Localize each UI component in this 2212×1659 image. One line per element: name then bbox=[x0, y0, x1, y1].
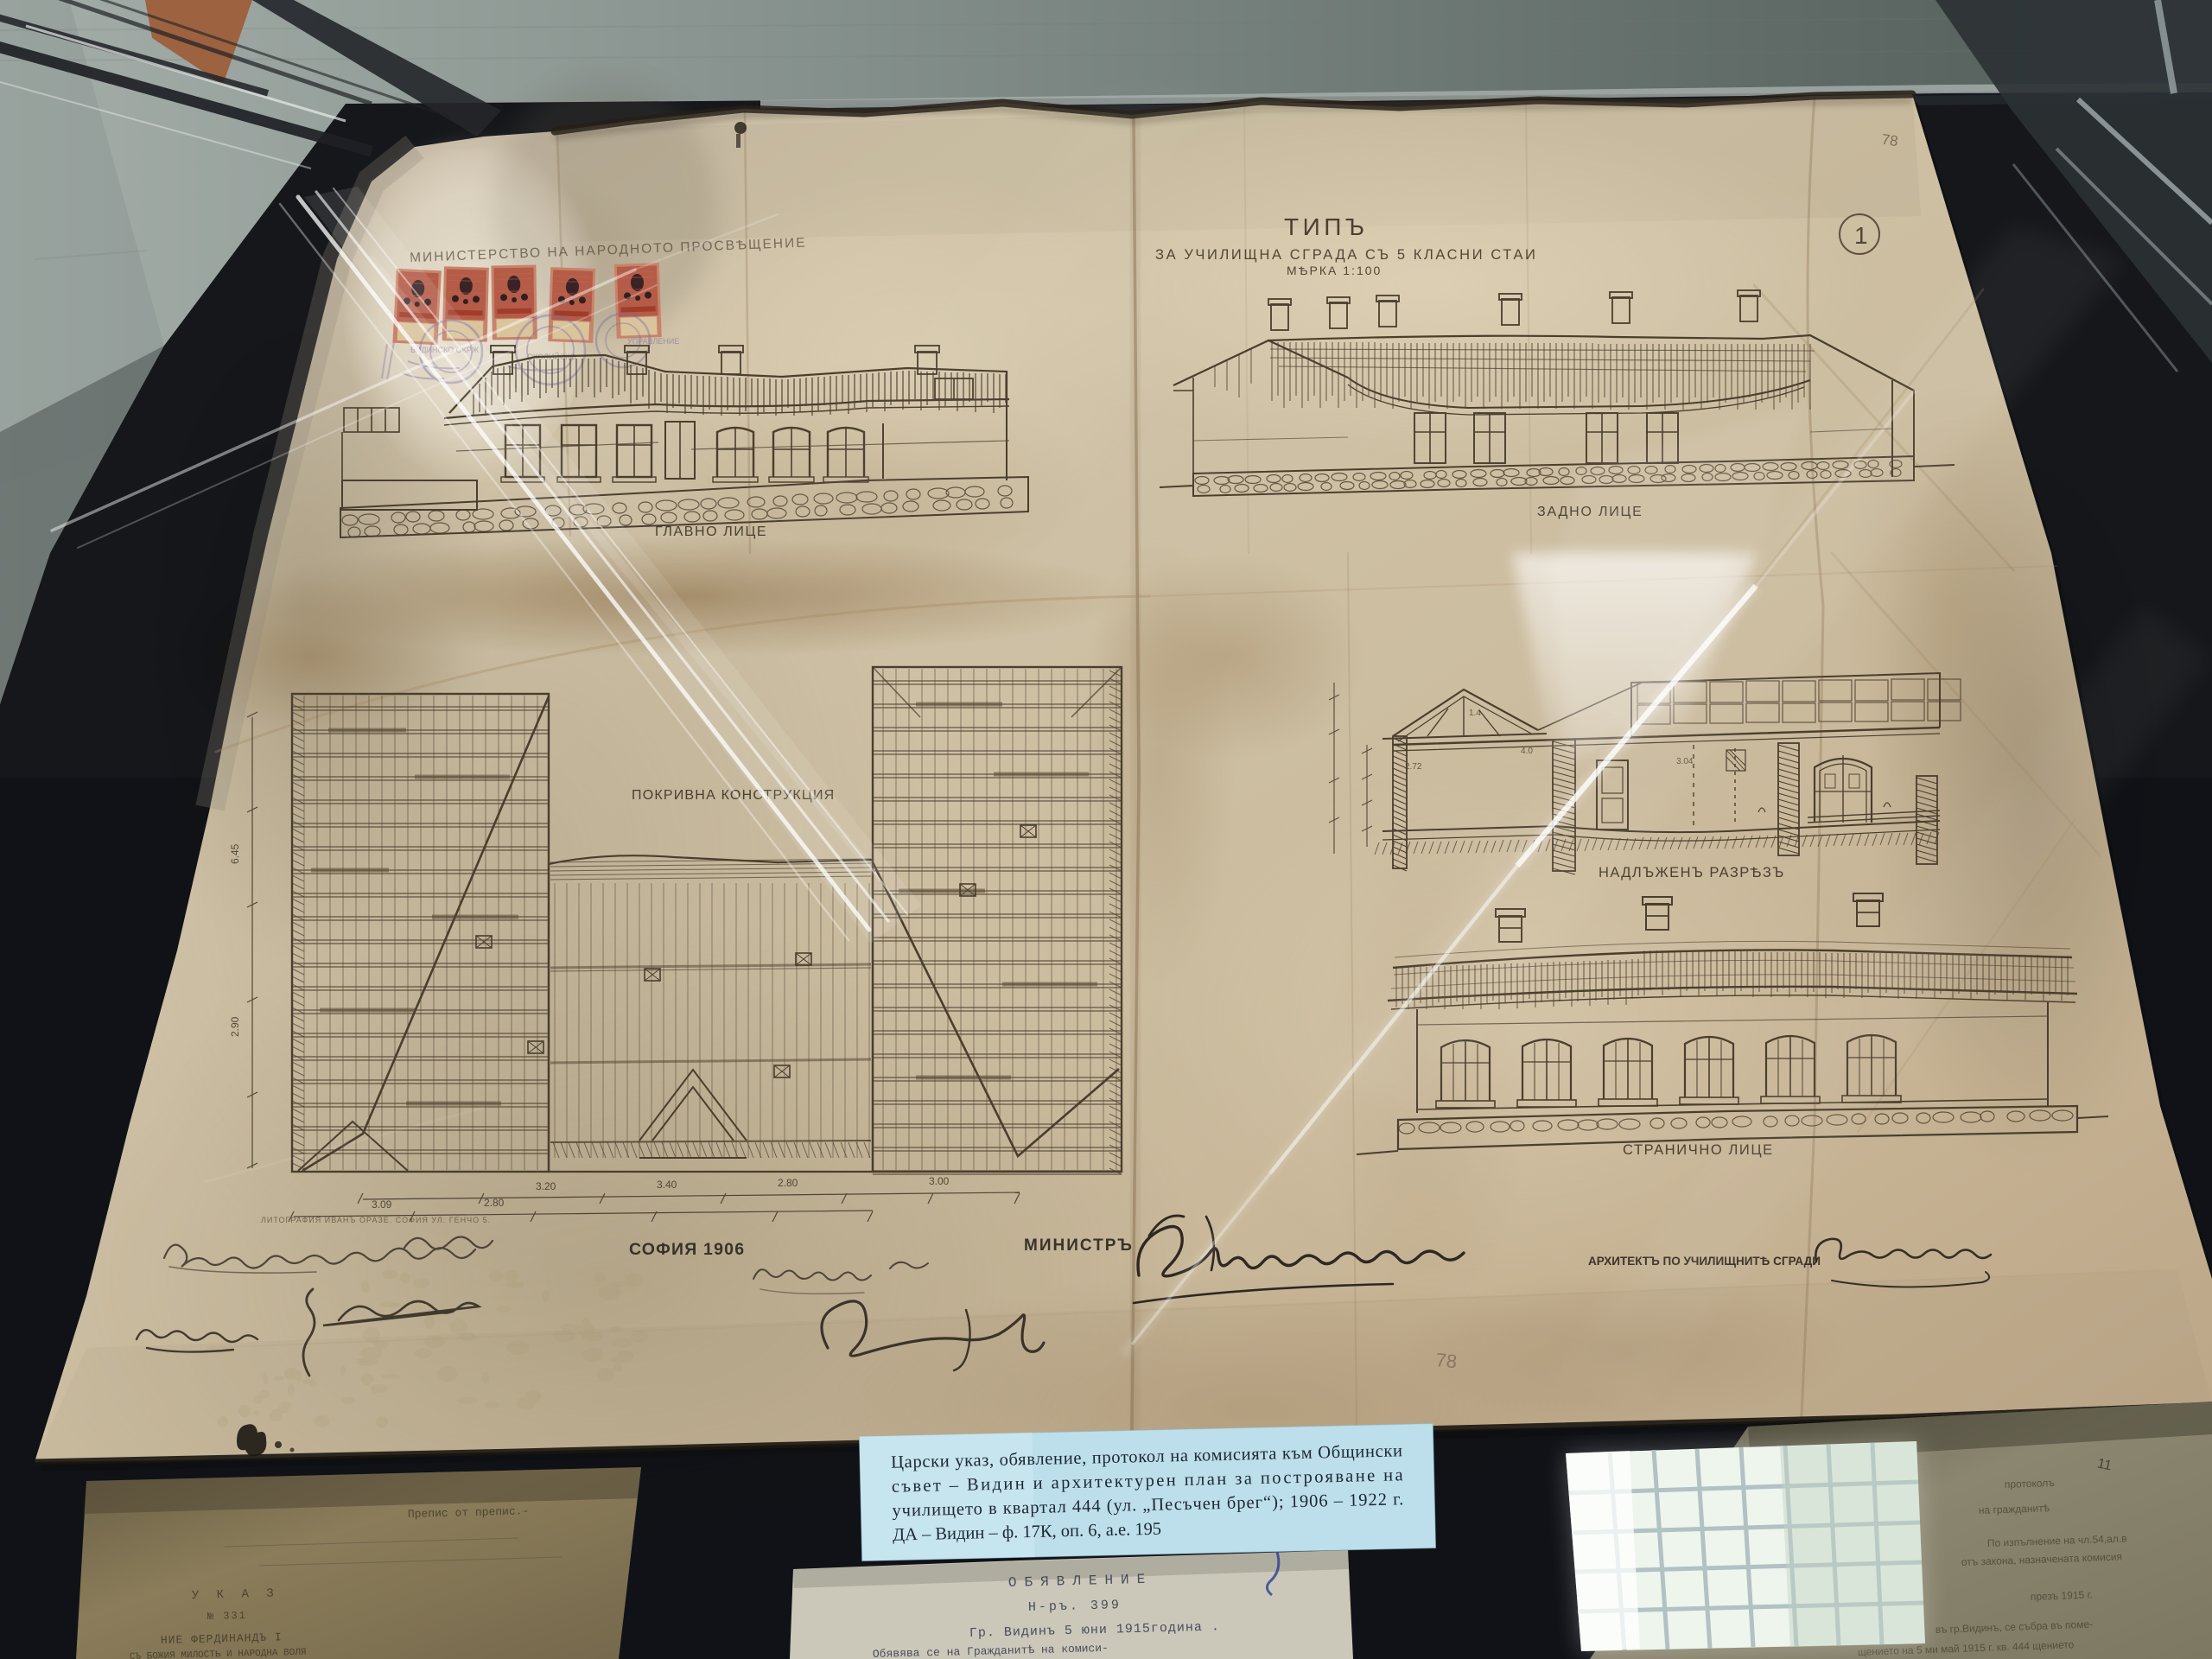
svg-text:на гражданитѣ: на гражданитѣ bbox=[1979, 1502, 2050, 1516]
svg-text:СОФИЯ 1906: СОФИЯ 1906 bbox=[629, 1240, 745, 1259]
svg-text:6.45: 6.45 bbox=[229, 843, 241, 864]
svg-text:протоколъ: протоколъ bbox=[2005, 1477, 2056, 1491]
svg-text:2.80: 2.80 bbox=[484, 1197, 505, 1209]
svg-text:презъ 1915 г.: презъ 1915 г. bbox=[2031, 1588, 2093, 1603]
svg-text:2.72: 2.72 bbox=[1405, 762, 1422, 772]
svg-text:2.90: 2.90 bbox=[229, 1016, 241, 1037]
svg-text:3.20: 3.20 bbox=[536, 1180, 556, 1192]
svg-text:1: 1 bbox=[1854, 222, 1868, 249]
svg-text:ТИПЪ: ТИПЪ bbox=[1284, 213, 1369, 240]
svg-text:МѢРКА 1:100: МѢРКА 1:100 bbox=[1287, 264, 1382, 277]
svg-text:Н-ръ. 399: Н-ръ. 399 bbox=[1028, 1598, 1122, 1615]
svg-text:78: 78 bbox=[1434, 1349, 1458, 1372]
svg-text:УПРАВЛЕНИЕ: УПРАВЛЕНИЕ bbox=[627, 337, 679, 346]
svg-text:3.09: 3.09 bbox=[372, 1198, 392, 1211]
svg-text:У К А З: У К А З bbox=[192, 1586, 279, 1603]
svg-text:№ 331: № 331 bbox=[207, 1610, 247, 1623]
svg-text:3.00: 3.00 bbox=[929, 1175, 950, 1187]
svg-text:НАДЛЪЖЕНЪ РАЗРѢЗЪ: НАДЛЪЖЕНЪ РАЗРѢЗЪ bbox=[1599, 865, 1785, 880]
svg-text:МИНИСТРЪ: МИНИСТРЪ bbox=[1024, 1236, 1134, 1255]
svg-text:ГЛАВНО ЛИЦЕ: ГЛАВНО ЛИЦЕ bbox=[655, 524, 767, 539]
svg-text:1.4: 1.4 bbox=[1469, 709, 1481, 718]
svg-text:78: 78 bbox=[1880, 131, 1898, 149]
svg-text:ЛИТОГРАФИЯ ИВАНЪ ОРАЗЕ. СОФИЯ: ЛИТОГРАФИЯ ИВАНЪ ОРАЗЕ. СОФИЯ УЛ. ГЕНЧО … bbox=[261, 1216, 491, 1224]
svg-text:3.40: 3.40 bbox=[657, 1179, 677, 1191]
svg-text:ЗА УЧИЛИЩНА СГРАДА СЪ 5 КЛАСНИ: ЗА УЧИЛИЩНА СГРАДА СЪ 5 КЛАСНИ СТАИ bbox=[1155, 247, 1538, 263]
svg-text:2.80: 2.80 bbox=[778, 1177, 798, 1189]
svg-text:4.0: 4.0 bbox=[1521, 747, 1533, 756]
